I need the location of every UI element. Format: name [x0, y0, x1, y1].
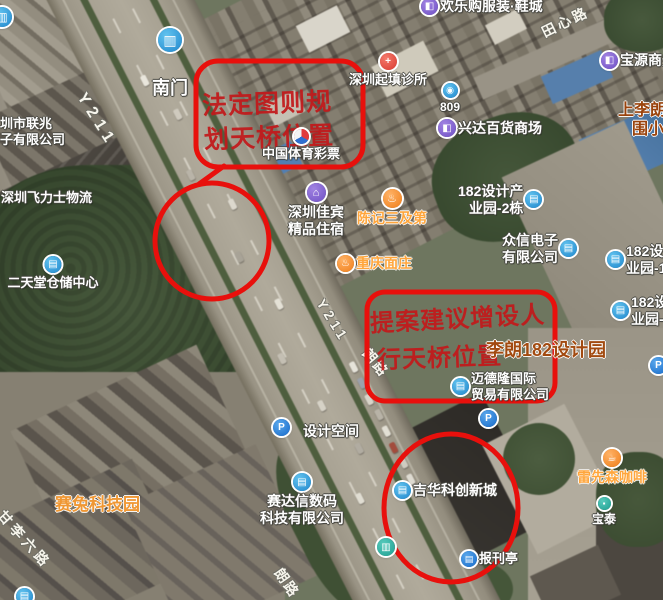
poi-label: 雷先森咖啡	[577, 469, 647, 486]
poi-shenzhen-qitian-clinic[interactable]: +深圳起填诊所	[349, 53, 427, 88]
poi-label: 809	[440, 100, 460, 114]
poi-label: 深圳佳宾精品住宿	[288, 204, 344, 238]
poi-lianzhao-electronics[interactable]: 圳市联兆子有限公司	[0, 116, 65, 147]
poi-poi-edge-bottom-left[interactable]: ▤	[16, 588, 33, 600]
poi-design-park-182-bldg1[interactable]: ▤182设业园-1	[607, 243, 663, 277]
poi-label: 圳市联兆子有限公司	[0, 116, 65, 147]
poi-ertiantang-warehouse[interactable]: ▤二天堂仓储中心	[7, 256, 98, 291]
poi-label: 宝泰	[592, 512, 616, 526]
shopping-bag-icon: ◧	[421, 0, 438, 15]
area-label-saitu-tech-park: 赛兔科技园	[55, 490, 140, 515]
poi-label: 陈记三及第	[357, 210, 427, 227]
poi-china-sports-lottery[interactable]: 中国体育彩票	[262, 129, 340, 162]
warehouse-icon: ▤	[44, 256, 61, 273]
poi-nanmen-bus-stop[interactable]: ▥南门	[152, 28, 188, 100]
poi-label: 182设业园-	[631, 294, 663, 328]
bus-stop-icon: ▥	[377, 538, 395, 556]
poi-label: 兴达百货商场	[458, 120, 542, 137]
poi-label: 182设业园-1	[626, 243, 663, 277]
kiosk-icon: ▤	[461, 551, 477, 567]
parking-icon: P	[480, 410, 497, 427]
lottery-icon	[293, 129, 308, 144]
poi-edge-stop-top-left[interactable]: ▥	[0, 7, 12, 27]
shopping-bag-icon: ◧	[438, 119, 456, 137]
poi-label: 设计空间	[303, 423, 359, 440]
poi-baoyuan-business[interactable]: ◧宝源商务	[601, 52, 663, 69]
area-label-weixiao: 围小	[632, 115, 663, 139]
building-icon: ▤	[452, 378, 469, 395]
satellite-map[interactable]: Y211Y211朗路田心路甘李六路朗路 法定图则规 划天桥位置 提案建议增设人 …	[0, 0, 663, 600]
shop-icon: ▪	[597, 497, 610, 510]
shopping-bag-icon: ◧	[601, 52, 618, 69]
hospital-cross-icon: +	[379, 53, 396, 70]
poi-label: 深圳飞力士物流	[1, 190, 92, 206]
poi-camera-809[interactable]: ◉809	[440, 83, 460, 114]
poi-design-park-182-bldg3[interactable]: ▤182设业园-	[612, 294, 663, 328]
poi-label: 二天堂仓储中心	[7, 275, 98, 291]
poi-baokanting-kiosk[interactable]: ▤报刊亭	[461, 551, 518, 567]
poi-parking-design-space[interactable]: P	[273, 419, 290, 436]
traffic-camera-icon: ◉	[443, 83, 458, 98]
poi-bus-stop-south[interactable]: ▥	[377, 538, 395, 556]
poi-label: 深圳起填诊所	[349, 72, 427, 88]
poi-label: 中国体育彩票	[262, 146, 340, 162]
poi-jihua-innovation-city[interactable]: ▤吉华科创新城	[394, 482, 497, 499]
poi-chenji-restaurant[interactable]: ♨陈记三及第	[357, 189, 427, 227]
poi-label: 吉华科创新城	[413, 482, 497, 499]
poi-label: 182设计产业园-2栋	[458, 183, 523, 217]
building-icon: ▤	[16, 588, 33, 600]
poi-label: 宝源商务	[620, 52, 663, 69]
poi-label: 赛达信数码科技有限公司	[260, 493, 344, 527]
poi-saidaxin-digital[interactable]: ▤赛达信数码科技有限公司	[260, 473, 344, 527]
building-icon: ▤	[607, 251, 624, 268]
poi-label: 重庆面庄	[356, 255, 412, 272]
poi-zhongxin-electronics[interactable]: ▤众信电子有限公司	[502, 232, 577, 266]
coffee-icon: ☕	[603, 449, 621, 467]
poi-huanlegou-mall[interactable]: ◧欢乐购服装·鞋城	[421, 0, 543, 15]
poi-parking-edge-right[interactable]: P	[650, 357, 663, 374]
poi-design-space[interactable]: 设计空间	[303, 423, 359, 440]
poi-label: 南门	[152, 78, 188, 100]
poi-design-park-182-bldg2[interactable]: ▤182设计产业园-2栋	[458, 183, 542, 217]
bus-stop-icon: ▥	[158, 28, 182, 52]
poi-baotai[interactable]: ▪宝泰	[592, 497, 616, 526]
poi-label: 欢乐购服装·鞋城	[440, 0, 543, 15]
hotel-bed-icon: ⌂	[307, 183, 326, 202]
bus-stop-icon: ▥	[0, 7, 12, 27]
poi-label: 报刊亭	[479, 551, 518, 567]
poi-xingda-department-store[interactable]: ◧兴达百货商场	[438, 119, 542, 137]
poi-label: 迈德隆国际贸易有限公司	[471, 371, 549, 402]
building-icon: ▤	[293, 473, 311, 491]
restaurant-icon: ♨	[383, 189, 402, 208]
building-icon: ▤	[525, 191, 542, 208]
area-label-lilang-182-design-park: 李朗182设计园	[486, 336, 606, 362]
poi-label: 众信电子有限公司	[502, 232, 558, 266]
parking-icon: P	[650, 357, 663, 374]
building-icon: ▤	[612, 302, 629, 319]
poi-chongqing-noodles[interactable]: ♨重庆面庄	[337, 255, 412, 272]
poi-feilishi-logistics[interactable]: 深圳飞力士物流	[1, 190, 92, 206]
building-icon: ▤	[394, 482, 411, 499]
parking-icon: P	[273, 419, 290, 436]
building-icon: ▤	[560, 240, 577, 257]
poi-leixiansen-coffee[interactable]: ☕雷先森咖啡	[577, 449, 647, 486]
poi-parking-mid[interactable]: P	[480, 410, 497, 427]
poi-maidelong-trading[interactable]: ▤迈德隆国际贸易有限公司	[452, 371, 549, 402]
poi-jiabin-boutique-hotel[interactable]: ⌂深圳佳宾精品住宿	[288, 183, 344, 238]
restaurant-icon: ♨	[337, 255, 354, 272]
